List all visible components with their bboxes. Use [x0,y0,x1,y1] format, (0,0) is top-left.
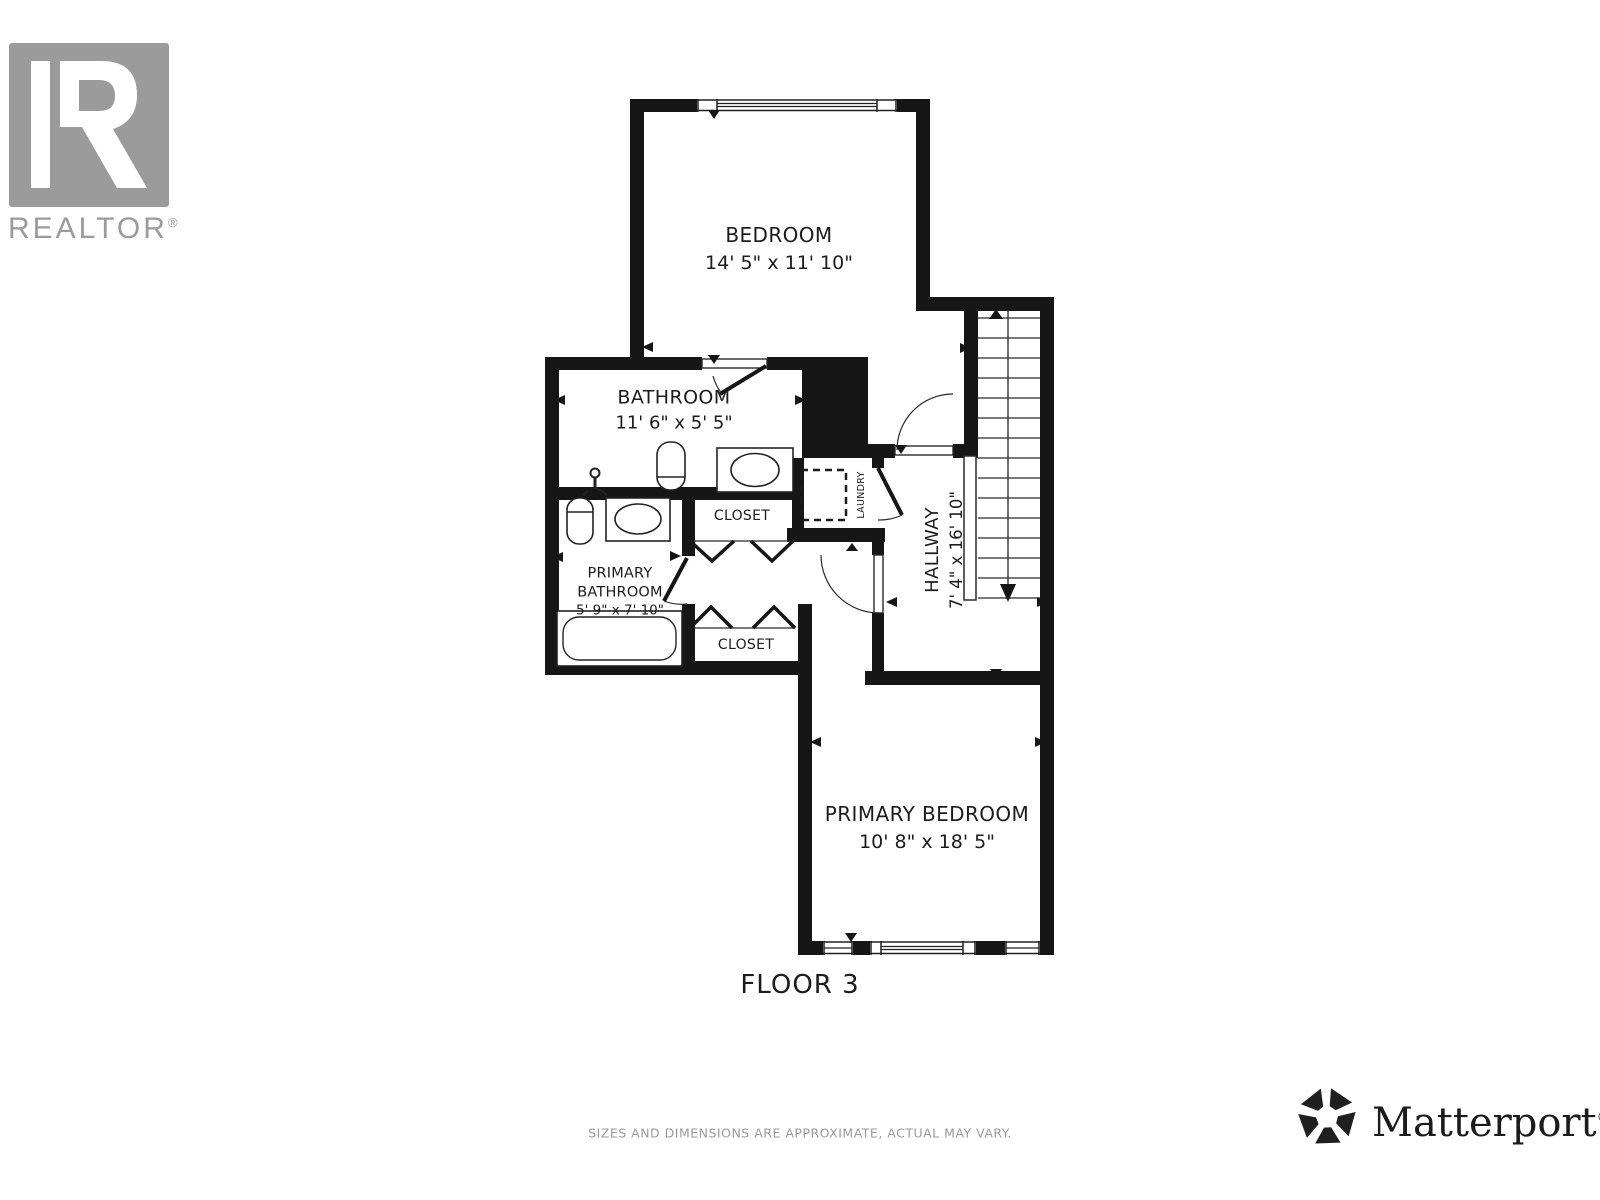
hallway-name: HALLWAY [921,507,944,593]
matterport-wordmark: Matterport® [1372,1100,1600,1146]
stairs-top-wall [916,297,1054,311]
arrow-left-icon [886,597,897,607]
closet-lower-bifold-left [690,607,732,628]
primary-bathroom-name-line2: BATHROOM [577,583,663,602]
primary-bedroom-dims: 10' 8" x 18' 5" [859,830,995,854]
primary-window-right [1005,941,1040,955]
bedroom-name: BEDROOM [725,223,832,249]
floor-plan-svg [0,0,1600,1200]
primary-bathroom-name-line1: PRIMARY [588,564,653,583]
primary-sink-icon [606,498,670,541]
closet-upper-bifold-left [690,541,734,561]
arrow-down-icon [708,110,720,119]
hallway-label: HALLWAY 7' 4" x 16' 10" [921,491,967,609]
primary-window-wide [870,941,976,955]
realtor-wordmark: REALTOR® [8,212,178,246]
primary-window-small [823,941,853,955]
realtor-block-r-icon [9,43,169,207]
hallway-vestibule-door [821,555,883,613]
floorplan-page: BEDROOM 14' 5" x 11' 10" BATHROOM 11' 6"… [0,0,1600,1200]
bedroom-window [697,99,897,112]
arrow-up-icon [846,543,858,551]
stairs-down-arrow-icon [1000,584,1016,602]
matterport-logo [1296,1086,1358,1152]
pbath-divider-upper [682,500,695,556]
laundry-bottom-wall [787,528,885,542]
washer-dryer-dashed-icon [801,470,846,520]
primary-bathroom-label: PRIMARY BATHROOM 5' 9" x 7' 10" [576,564,664,619]
closet-upper-name: CLOSET [714,508,770,526]
closet-lower-label: CLOSET [718,637,774,655]
bedroom-label: BEDROOM 14' 5" x 11' 10" [705,223,853,275]
closet-upper-bifold-right [751,541,793,561]
bathroom-label: BATHROOM 11' 6" x 5' 5" [615,385,732,434]
hallway-dims: 7' 4" x 16' 10" [946,491,967,609]
bedroom-right-wall [916,99,930,311]
laundry-door [878,468,902,520]
bedroom-door-wall-left [868,444,895,458]
primary-bathroom-door [664,558,687,604]
laundry-right-wall-stub [872,458,884,468]
closet-lower-bifold-right [753,607,795,628]
bathroom-name: BATHROOM [617,385,730,409]
disclaimer-text: SIZES AND DIMENSIONS ARE APPROXIMATE, AC… [588,1126,1012,1141]
bedroom-left-wall [630,99,644,370]
bathroom-dims: 11' 6" x 5' 5" [615,412,732,435]
arrow-down-icon [845,933,857,942]
realtor-wordmark-text: REALTOR [8,212,168,245]
primary-left-wall [798,604,812,955]
bathroom-sink-icon [717,448,793,492]
realtor-logo [9,43,169,211]
stair-treads [978,318,1040,598]
closet-bifold-doors [688,541,795,628]
chase-block [802,357,868,458]
floor-title: FLOOR 3 [740,970,859,1000]
bedroom-dims: 14' 5" x 11' 10" [705,251,853,275]
realtor-registered-mark: ® [168,215,178,230]
bathroom-top-wall-right [767,357,807,370]
bathroom-top-wall-left [545,357,702,370]
right-outer-wall [1040,297,1054,955]
primary-toilet-icon [567,498,593,544]
laundry-label: LAUNDRY [856,471,868,518]
matterport-registered-mark: ® [1597,1110,1600,1126]
bathroom-toilet-icon [657,442,685,490]
matterport-wordmark-text: Matterport [1372,1100,1597,1146]
primary-bedroom-label: PRIMARY BEDROOM 10' 8" x 18' 5" [825,802,1029,854]
hallway-bottom-wall [865,671,1054,685]
closet-lower-name: CLOSET [718,637,774,655]
primary-bathroom-dims: 5' 9" x 7' 10" [576,602,664,619]
stairs-left-wall [964,311,978,458]
arrow-right-icon [670,551,681,561]
matterport-pinwheel-icon [1296,1086,1358,1148]
closet-upper-label: CLOSET [714,508,770,526]
laundry-name: LAUNDRY [856,471,868,518]
primary-bedroom-name: PRIMARY BEDROOM [825,802,1029,828]
